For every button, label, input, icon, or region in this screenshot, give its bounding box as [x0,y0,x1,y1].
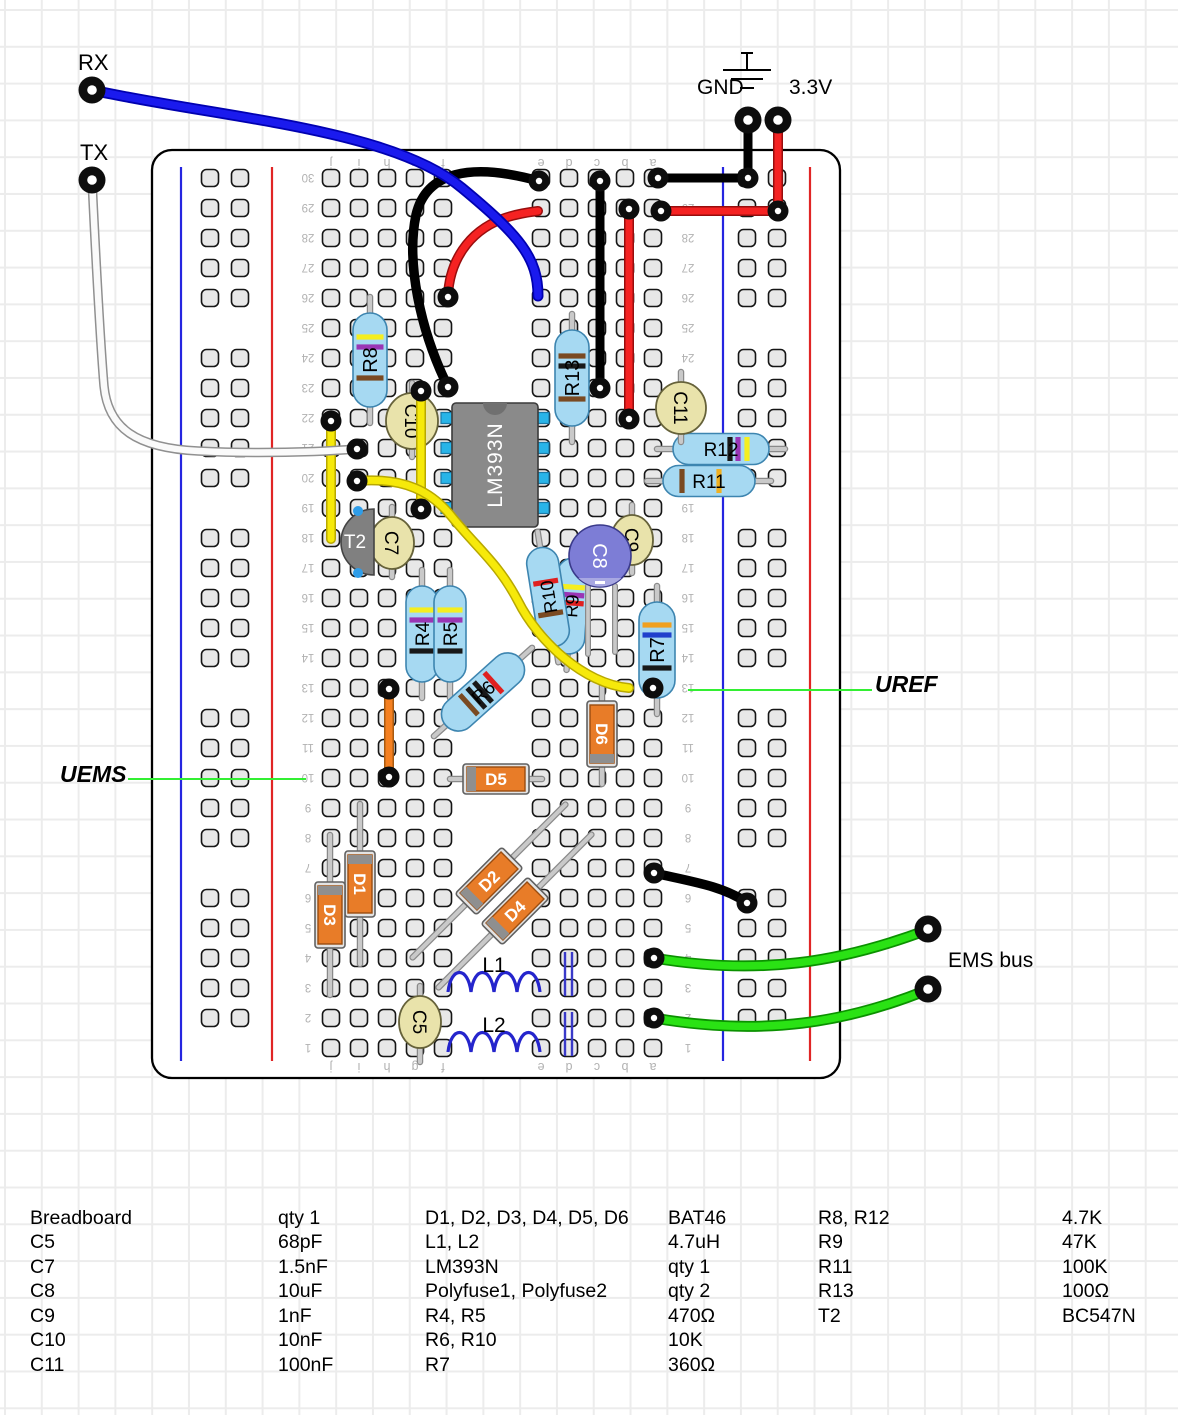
breadboard-hole [645,290,662,307]
breadboard-hole [739,770,756,787]
text-label: L2 [482,1014,505,1037]
text-label: C7 [380,531,401,555]
parts-list-cell: BC547N [1062,1307,1136,1327]
breadboard-hole [379,920,396,937]
breadboard-hole [769,740,786,757]
parts-list-cell: Breadboard [30,1209,132,1229]
breadboard-hole [232,410,249,427]
breadboard-hole [323,740,340,757]
text-label: L1 [482,954,505,977]
breadboard-hole [533,950,550,967]
breadboard-hole [617,650,634,667]
text-label: 15 [682,621,695,633]
text-label: C11 [669,391,690,424]
rx-label: RX [78,52,109,74]
breadboard-hole [435,320,452,337]
breadboard-hole [202,1010,219,1027]
breadboard-hole [739,290,756,307]
circuit-diagram: 1122334455667788991010111112121313141415… [0,0,1178,1415]
breadboard-hole [232,260,249,277]
parts-list-cell: 10K [668,1331,703,1351]
breadboard-hole [739,620,756,637]
breadboard-hole [589,920,606,937]
text-label: 24 [681,351,694,363]
breadboard-hole [645,320,662,337]
breadboard-hole [617,770,634,787]
diode-d5: D5 [450,764,542,794]
breadboard-hole [351,200,368,217]
breadboard-hole [561,770,578,787]
breadboard-hole [407,740,424,757]
breadboard-hole [202,830,219,847]
breadboard-hole [645,350,662,367]
parts-list-cell: 47K [1062,1233,1097,1253]
breadboard-hole [769,530,786,547]
breadboard-hole [379,980,396,997]
text-label: 28 [302,231,315,243]
breadboard-hole [232,710,249,727]
breadboard-hole [351,290,368,307]
text-label: h [383,156,390,170]
breadboard-hole [589,410,606,427]
text-label: R11 [692,472,725,493]
breadboard-hole [407,770,424,787]
text-label: R4 [413,621,434,646]
breadboard-hole [435,890,452,907]
ems-bus-label: EMS bus [948,950,1033,971]
parts-list-cell: 100Ω [1062,1282,1109,1302]
breadboard-hole [533,800,550,817]
breadboard-hole [323,290,340,307]
breadboard-hole [739,920,756,937]
breadboard-hole [533,920,550,937]
parts-list-cell: 100K [1062,1258,1108,1278]
breadboard-hole [739,800,756,817]
parts-list-cell: R9 [818,1233,843,1253]
breadboard-hole [379,1040,396,1057]
parts-list-cell: 10nF [278,1331,322,1351]
breadboard-hole [202,410,219,427]
breadboard-hole [739,590,756,607]
text-label: 12 [302,711,315,723]
breadboard-hole [323,200,340,217]
breadboard-hole [645,260,662,277]
breadboard-hole [617,1010,634,1027]
breadboard-hole [617,710,634,727]
breadboard-hole [379,620,396,637]
parts-list-cell: C7 [30,1258,55,1278]
text-label: 25 [302,321,315,333]
breadboard-hole [232,230,249,247]
breadboard-hole [351,980,368,997]
breadboard-hole [202,260,219,277]
text-label: 14 [301,651,314,663]
breadboard-hole [202,290,219,307]
breadboard-hole [407,890,424,907]
text-label: 7 [305,861,311,873]
breadboard-hole [533,320,550,337]
breadboard-hole [202,170,219,187]
text-label: 3 [685,981,691,993]
breadboard-hole [739,710,756,727]
breadboard-hole [589,500,606,517]
breadboard-hole [232,170,249,187]
text-label: 9 [305,801,311,813]
breadboard-hole [533,230,550,247]
breadboard-hole [232,620,249,637]
parts-list-cell: 1.5nF [278,1258,328,1278]
breadboard-hole [435,830,452,847]
parts-list-cell: C9 [30,1307,55,1327]
breadboard-hole [379,950,396,967]
breadboard-hole [739,740,756,757]
breadboard-hole [202,920,219,937]
text-label: R8 [360,347,382,373]
parts-list-cell: Polyfuse1, Polyfuse2 [425,1282,607,1302]
text-label: D1 [350,873,369,895]
breadboard-hole [589,890,606,907]
breadboard-hole [769,710,786,727]
text-label: 23 [302,381,315,393]
text-label: 1 [305,1041,311,1053]
parts-list-cell: R7 [425,1356,450,1376]
breadboard-hole [739,350,756,367]
parts-list-cell: 68pF [278,1233,322,1253]
breadboard-hole [323,350,340,367]
breadboard-hole [202,620,219,637]
parts-list-cell: R11 [818,1258,852,1278]
breadboard-hole [533,380,550,397]
breadboard-hole [232,1010,249,1027]
text-label: 9 [685,801,691,813]
breadboard-hole [351,590,368,607]
breadboard-hole [769,380,786,397]
breadboard-hole [769,350,786,367]
text-label: 6 [685,891,691,903]
breadboard-hole [202,530,219,547]
breadboard-hole [323,1010,340,1027]
parts-list-cell: R8, R12 [818,1209,890,1229]
breadboard-hole [645,980,662,997]
text-label: 5 [305,921,311,933]
breadboard-hole [379,860,396,877]
breadboard-hole [351,710,368,727]
breadboard-hole [379,890,396,907]
breadboard-hole [589,1010,606,1027]
breadboard-hole [202,200,219,217]
breadboard-hole [561,1010,578,1027]
text-label: 11 [302,741,314,753]
text-label: 6 [305,891,311,903]
breadboard-hole [232,650,249,667]
breadboard-hole [739,410,756,427]
text-label: j [330,1060,334,1074]
breadboard-hole [645,800,662,817]
breadboard-hole [561,740,578,757]
breadboard-hole [739,560,756,577]
parts-list-cell: C10 [30,1331,66,1351]
text-label: C8 [588,543,610,569]
text-label: c [594,1060,600,1074]
breadboard-hole [323,680,340,697]
breadboard-hole [589,650,606,667]
breadboard-hole [769,890,786,907]
breadboard-hole [323,560,340,577]
breadboard-hole [561,710,578,727]
breadboard-hole [561,230,578,247]
breadboard-hole [379,830,396,847]
text-label: 10 [682,771,695,783]
text-label: h [383,1060,390,1074]
text-label: 5 [685,921,691,933]
breadboard-hole [232,980,249,997]
breadboard-hole [232,350,249,367]
breadboard-hole [202,800,219,817]
text-label: 26 [302,291,315,303]
breadboard-hole [769,590,786,607]
text-label: R5 [441,622,462,646]
parts-list-cell: R4, R5 [425,1307,486,1327]
text-label: i [358,1060,361,1074]
breadboard-hole [379,650,396,667]
breadboard-hole [617,170,634,187]
breadboard-hole [589,1040,606,1057]
v33-label: 3.3V [789,77,832,98]
breadboard-hole [617,860,634,877]
text-label: 24 [301,351,314,363]
breadboard-hole [435,740,452,757]
text-label: 20 [302,471,315,483]
parts-list-cell: C11 [30,1356,64,1376]
text-label: e [537,1060,544,1074]
parts-list-cell: D1, D2, D3, D4, D5, D6 [425,1209,629,1229]
breadboard-hole [769,260,786,277]
text-label: 19 [302,501,315,513]
breadboard-hole [202,650,219,667]
breadboard-hole [561,680,578,697]
breadboard-hole [232,830,249,847]
parts-list-cell: LM393N [425,1258,499,1278]
breadboard-hole [323,710,340,727]
diagram-canvas: 1122334455667788991010111112121313141415… [0,0,1178,1415]
text-label: T2 [344,532,366,553]
breadboard-hole [232,920,249,937]
breadboard-hole [232,800,249,817]
breadboard-hole [561,890,578,907]
breadboard-hole [589,440,606,457]
parts-list-cell: T2 [818,1307,841,1327]
text-label: 1 [685,1041,691,1053]
text-label: 30 [302,171,315,183]
breadboard-hole [769,620,786,637]
page: { "page_labels": { "rx": "RX", "tx": "TX… [0,0,1178,1415]
breadboard-hole [589,620,606,637]
breadboard-hole [769,290,786,307]
text-label: b [621,1060,628,1074]
breadboard-hole [351,410,368,427]
breadboard-hole [561,830,578,847]
breadboard-hole [617,800,634,817]
breadboard-hole [435,230,452,247]
breadboard-hole [323,1040,340,1057]
breadboard-hole [351,1010,368,1027]
text-label: R12 [704,440,739,461]
breadboard-hole [351,260,368,277]
parts-list-cell: BAT46 [668,1209,726,1229]
breadboard-hole [769,560,786,577]
breadboard-hole [589,950,606,967]
breadboard-hole [533,680,550,697]
text-label: i [358,156,361,170]
breadboard-hole [323,320,340,337]
breadboard-hole [561,500,578,517]
tx-label: TX [80,142,108,164]
breadboard-hole [435,530,452,547]
breadboard-hole [617,590,634,607]
breadboard-hole [407,800,424,817]
text-label: 11 [682,741,694,753]
text-label: 3 [305,981,311,993]
breadboard-hole [379,800,396,817]
breadboard-hole [561,980,578,997]
breadboard-hole [202,890,219,907]
uref-label: UREF [875,673,938,696]
breadboard-hole [379,260,396,277]
breadboard-hole [769,410,786,427]
breadboard-hole [589,470,606,487]
text-label: 16 [682,591,695,603]
text-label: 17 [682,561,695,573]
breadboard-hole [561,290,578,307]
breadboard-hole [739,380,756,397]
parts-list-cell: qty 1 [668,1258,710,1278]
text-label: 25 [682,321,695,333]
breadboard-hole [202,980,219,997]
breadboard-hole [435,950,452,967]
breadboard-hole [645,770,662,787]
breadboard-hole [379,440,396,457]
breadboard-hole [561,950,578,967]
breadboard-hole [323,230,340,247]
text-label: 4 [304,951,311,963]
breadboard-hole [645,890,662,907]
breadboard-hole [561,200,578,217]
breadboard-hole [645,560,662,577]
text-label: 16 [302,591,315,603]
text-label: D6 [592,723,611,745]
parts-list-cell: 4.7K [1062,1209,1102,1229]
breadboard-hole [202,740,219,757]
text-label: 14 [681,651,694,663]
breadboard-hole [561,470,578,487]
breadboard-hole [232,740,249,757]
text-label: j [330,156,334,170]
breadboard-hole [202,350,219,367]
breadboard-hole [435,800,452,817]
breadboard-hole [351,170,368,187]
breadboard-hole [769,920,786,937]
breadboard-hole [202,380,219,397]
text-label: d [565,1060,572,1074]
parts-list-cell: C8 [30,1282,55,1302]
text-label: 18 [302,531,315,543]
text-label: 27 [302,261,315,273]
breadboard-hole [533,710,550,727]
text-label: e [537,156,544,170]
text-label: R13 [562,360,584,397]
text-label: 8 [685,831,691,843]
breadboard-hole [351,770,368,787]
breadboard-hole [202,470,219,487]
parts-list-cell: 470Ω [668,1307,715,1327]
breadboard-hole [561,920,578,937]
breadboard-hole [589,590,606,607]
breadboard-hole [533,740,550,757]
parts-list-cell: L1, L2 [425,1233,479,1253]
text-label: 13 [682,681,695,693]
breadboard-hole [617,440,634,457]
text-label: D5 [485,770,507,789]
text-label: 22 [302,411,315,423]
text-label: R7 [647,637,669,663]
parts-list-cell: 100nF [278,1356,333,1376]
breadboard-hole [617,830,634,847]
breadboard-hole [202,560,219,577]
breadboard-hole [739,980,756,997]
breadboard-hole [435,860,452,877]
breadboard-hole [769,800,786,817]
breadboard-hole [533,1010,550,1027]
breadboard-hole [232,530,249,547]
text-label: c [594,156,600,170]
parts-list-cell: qty 1 [278,1209,320,1229]
breadboard-hole [351,680,368,697]
breadboard-hole [351,620,368,637]
parts-list-cell: 360Ω [668,1356,715,1376]
parts-list-cell: 10uF [278,1282,322,1302]
breadboard-hole [407,710,424,727]
breadboard-hole [617,740,634,757]
breadboard-hole [407,920,424,937]
breadboard-hole [407,860,424,877]
breadboard-hole [232,560,249,577]
breadboard-hole [407,170,424,187]
breadboard-hole [202,230,219,247]
breadboard-hole [769,830,786,847]
breadboard-hole [323,380,340,397]
parts-list-cell: 1nF [278,1307,312,1327]
text-label: LM393N [484,422,507,507]
breadboard-hole [232,200,249,217]
breadboard-hole [379,200,396,217]
breadboard-hole [351,740,368,757]
parts-list-cell: 4.7uH [668,1233,720,1253]
breadboard-hole [739,650,756,667]
breadboard-hole [232,380,249,397]
text-label: 12 [682,711,695,723]
text-label: 2 [305,1011,311,1023]
breadboard-hole [232,950,249,967]
breadboard-hole [645,1040,662,1057]
breadboard-hole [617,890,634,907]
breadboard-hole [232,890,249,907]
breadboard-hole [617,920,634,937]
breadboard-hole [232,590,249,607]
breadboard-hole [323,650,340,667]
text-label: b [621,156,628,170]
breadboard-hole [645,740,662,757]
breadboard-hole [769,650,786,667]
